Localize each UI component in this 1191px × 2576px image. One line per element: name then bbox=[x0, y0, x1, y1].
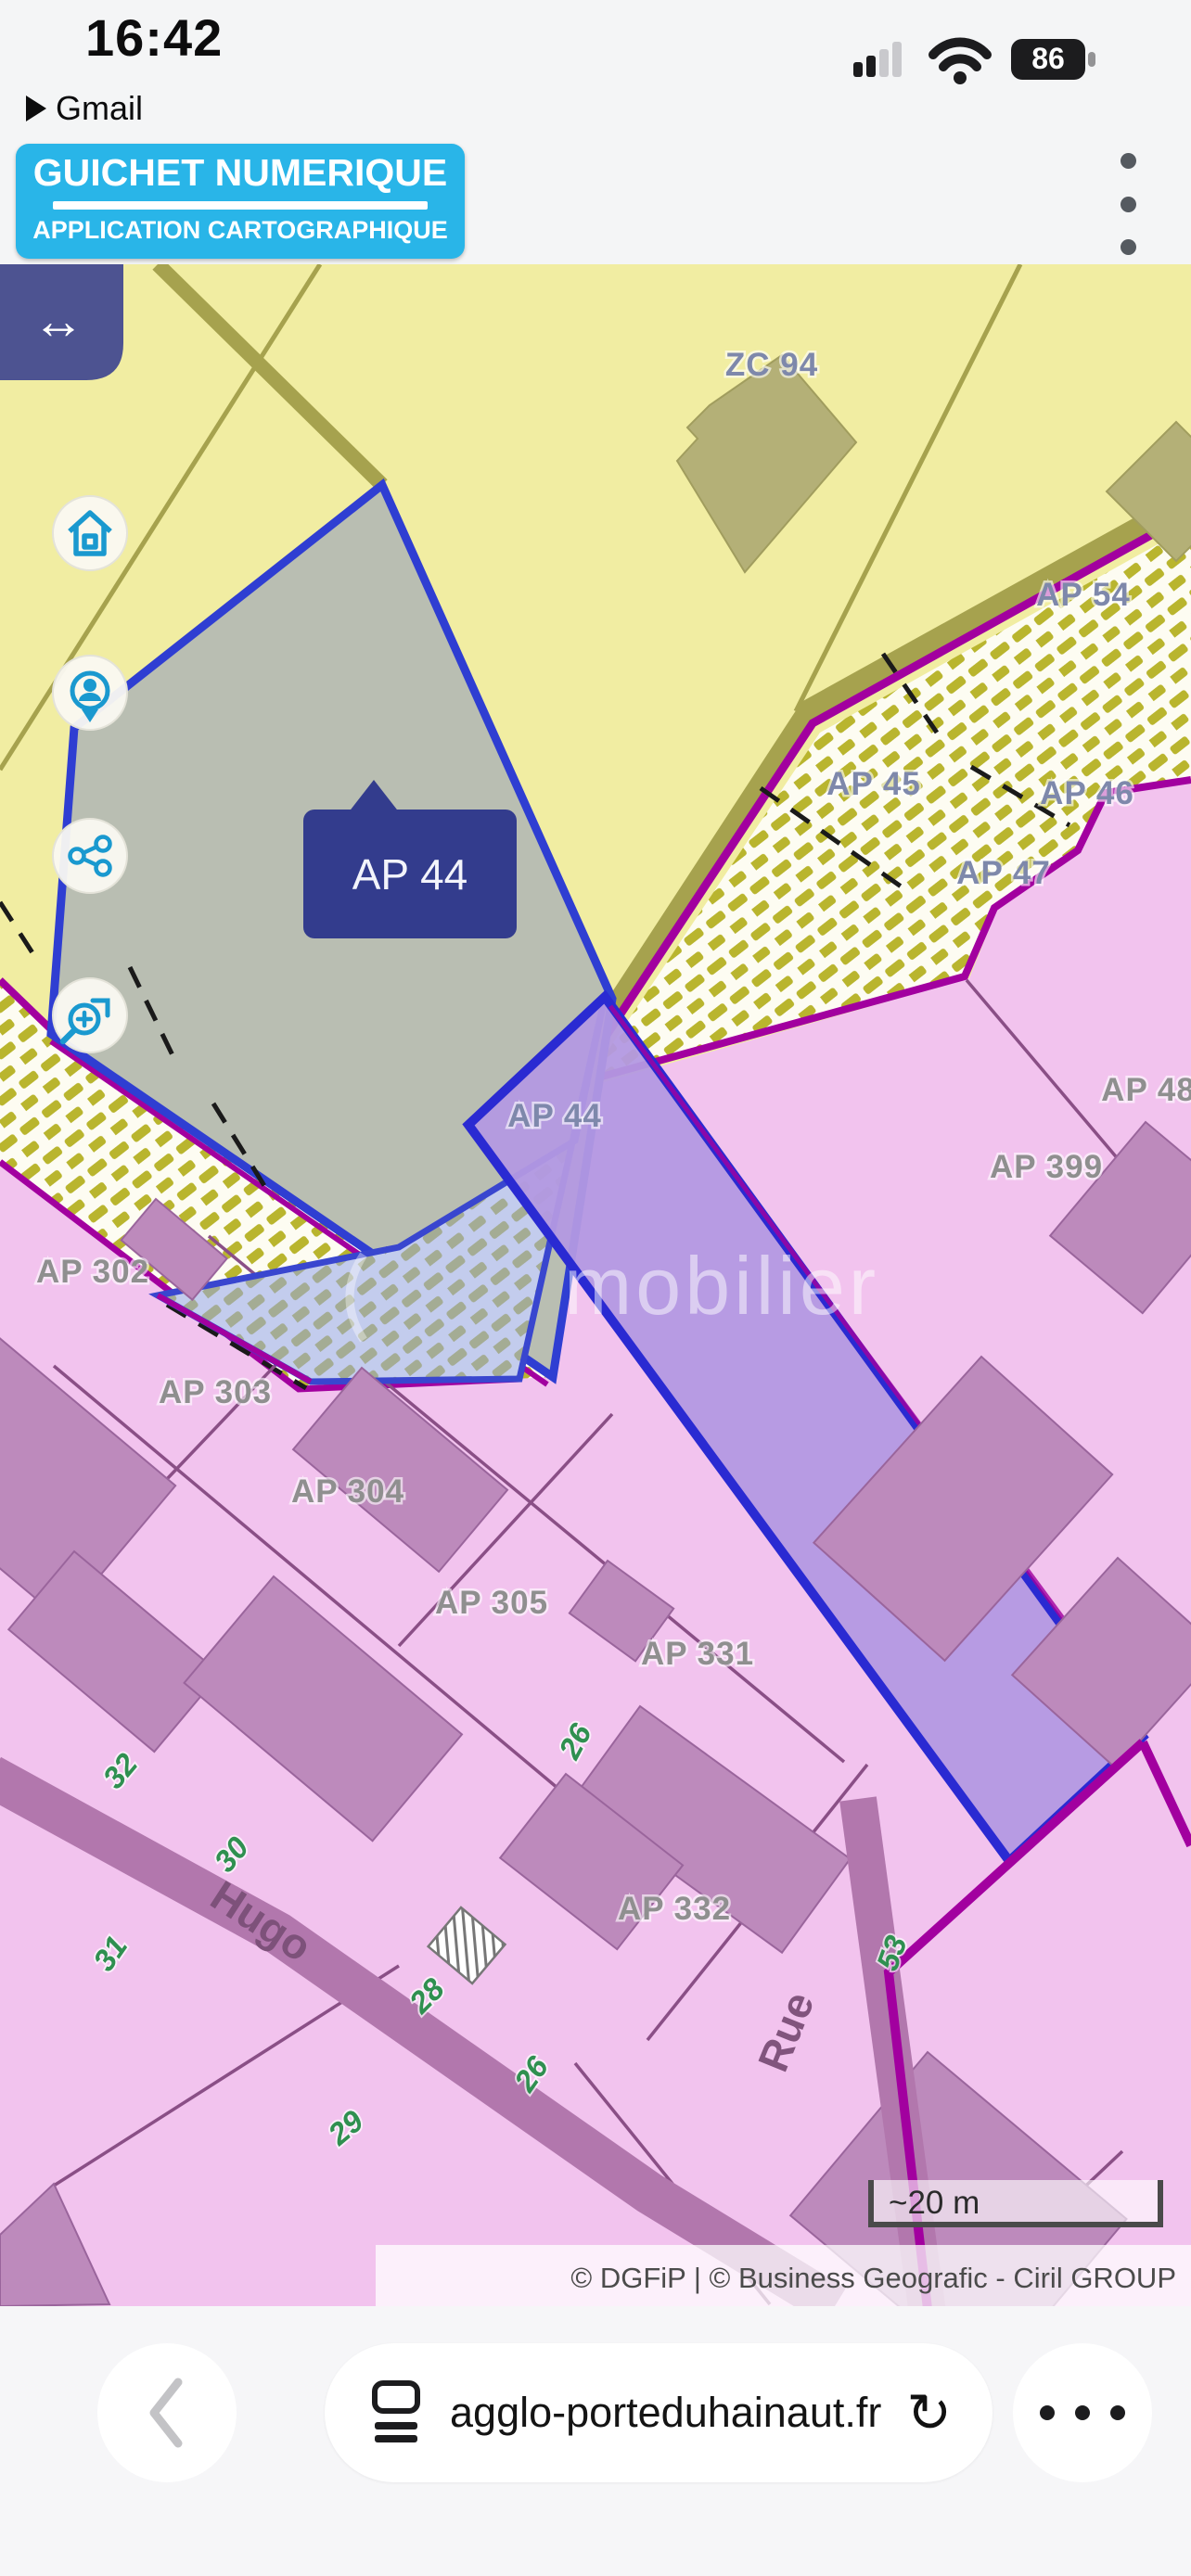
app-title-badge: GUICHET NUMERIQUE APPLICATION CARTOGRAPH… bbox=[16, 144, 465, 259]
top-chrome: 16:42 Gmail 86 GUICHET NUMERIQUE APPLICA… bbox=[0, 0, 1191, 264]
zoom-area-button[interactable] bbox=[53, 978, 127, 1052]
battery-percent: 86 bbox=[1031, 42, 1065, 75]
cadastral-map[interactable]: ZC 94AP 54AP 45AP 46AP 47AP 44AP 48AP 39… bbox=[0, 264, 1191, 2306]
parcel-label: AP 332 bbox=[618, 1891, 731, 1927]
parcel-label: AP 48 bbox=[1101, 1072, 1191, 1108]
reader-view-icon[interactable] bbox=[369, 2376, 425, 2450]
parcel-label: AP 54 bbox=[1036, 577, 1131, 613]
parcel-label: AP 45 bbox=[826, 766, 921, 802]
tooltip-label: AP 44 bbox=[352, 850, 467, 899]
scale-label: ~20 m bbox=[889, 2185, 980, 2221]
back-app-label: Gmail bbox=[56, 89, 143, 128]
resize-arrows-icon: ↔ bbox=[32, 291, 84, 350]
ellipsis-icon bbox=[1040, 2405, 1125, 2420]
locate-button[interactable] bbox=[53, 656, 127, 730]
kebab-menu-icon[interactable] bbox=[1109, 153, 1146, 255]
parcel-label: AP 305 bbox=[435, 1585, 548, 1621]
back-to-gmail-link[interactable]: Gmail bbox=[26, 89, 143, 128]
attribution-text: © DGFiP | © Business Geografic - Ciril G… bbox=[570, 2262, 1176, 2294]
parcel-label: AP 46 bbox=[1040, 775, 1134, 811]
browser-bottom-bar: agglo-porteduhainaut.fr ↻ bbox=[0, 2306, 1191, 2576]
cellular-signal-icon bbox=[853, 42, 902, 77]
panel-collapse-tab[interactable]: ↔ bbox=[0, 264, 123, 380]
home-button[interactable] bbox=[53, 496, 127, 570]
parcel-label: AP 47 bbox=[956, 855, 1051, 891]
parcel-label: AP 331 bbox=[641, 1636, 754, 1672]
status-time: 16:42 bbox=[85, 7, 223, 68]
parcel-label: AP 303 bbox=[159, 1374, 272, 1410]
parcel-label: AP 304 bbox=[291, 1473, 404, 1510]
app-title-line2: APPLICATION CARTOGRAPHIQUE bbox=[16, 216, 465, 245]
map-container: ZC 94AP 54AP 45AP 46AP 47AP 44AP 48AP 39… bbox=[0, 264, 1191, 2306]
parcel-label: AP 399 bbox=[990, 1149, 1103, 1185]
app-title-line1: GUICHET NUMERIQUE bbox=[16, 151, 465, 195]
parcel-label: ZC 94 bbox=[725, 347, 818, 383]
browser-more-button[interactable] bbox=[1013, 2343, 1152, 2482]
url-text: agglo-porteduhainaut.fr bbox=[425, 2389, 906, 2437]
battery-icon: 86 bbox=[1011, 39, 1095, 80]
wifi-icon bbox=[933, 43, 987, 84]
reload-icon[interactable]: ↻ bbox=[906, 2381, 952, 2444]
parcel-label: AP 44 bbox=[507, 1098, 602, 1134]
badge-divider bbox=[53, 201, 428, 210]
address-bar[interactable]: agglo-porteduhainaut.fr ↻ bbox=[325, 2343, 992, 2482]
share-button[interactable] bbox=[53, 819, 127, 893]
back-triangle-icon bbox=[26, 96, 46, 121]
status-icons: 86 bbox=[853, 24, 1132, 89]
watermark-text: mobilier bbox=[564, 1240, 879, 1332]
scale-bar: ~20 m bbox=[871, 2180, 1160, 2225]
browser-back-button[interactable] bbox=[97, 2343, 237, 2482]
chevron-left-icon bbox=[139, 2371, 195, 2455]
parcel-label: AP 302 bbox=[36, 1254, 149, 1290]
attribution-bar: © DGFiP | © Business Geografic - Ciril G… bbox=[376, 2245, 1191, 2306]
